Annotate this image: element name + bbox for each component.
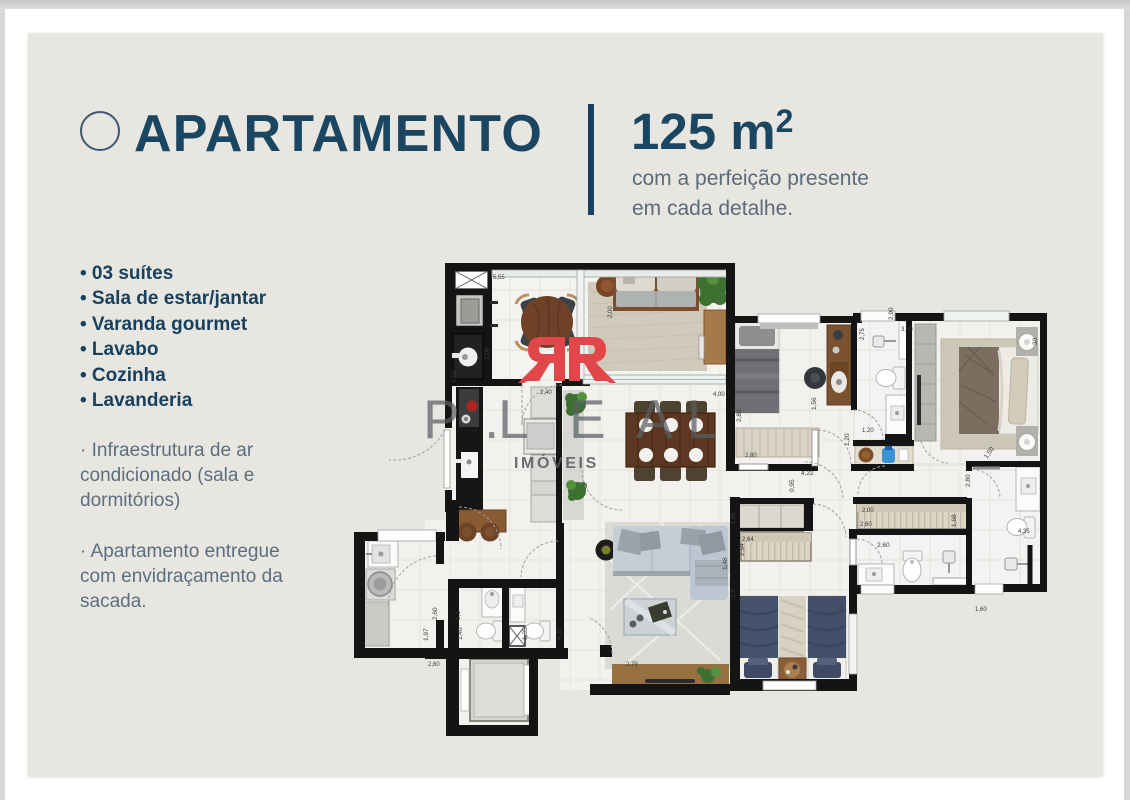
svg-text:A: A — [636, 388, 673, 450]
svg-text:30: 30 — [1032, 337, 1039, 345]
svg-text:2,75: 2,75 — [860, 328, 866, 340]
svg-text:4,58: 4,58 — [451, 370, 458, 383]
svg-text:2,64: 2,64 — [742, 537, 754, 543]
svg-text:2,40: 2,40 — [540, 390, 552, 396]
svg-text:1,20: 1,20 — [844, 433, 851, 446]
svg-text:2,80: 2,80 — [965, 474, 972, 487]
svg-text:1,56: 1,56 — [731, 512, 737, 524]
svg-text:4,22: 4,22 — [801, 470, 814, 477]
svg-text:3,00: 3,00 — [901, 327, 913, 333]
svg-text:2,79: 2,79 — [626, 662, 638, 668]
svg-text:0,95: 0,95 — [789, 479, 796, 492]
svg-text:1,5: 1,5 — [730, 589, 737, 598]
svg-text:1,97: 1,97 — [423, 628, 430, 641]
svg-text:1,1: 1,1 — [455, 611, 462, 620]
svg-text:L: L — [687, 388, 718, 450]
svg-text:4,35: 4,35 — [1018, 529, 1030, 535]
svg-text:5,55: 5,55 — [493, 275, 505, 281]
svg-text:2,80: 2,80 — [736, 409, 743, 422]
svg-text:4,22: 4,22 — [556, 627, 563, 640]
svg-text:1,40: 1,40 — [457, 627, 464, 640]
svg-text:1,60: 1,60 — [975, 607, 987, 613]
svg-text:2,00: 2,00 — [608, 306, 614, 318]
svg-text:E: E — [569, 388, 606, 450]
svg-text:L: L — [498, 388, 529, 450]
svg-text:2,60: 2,60 — [428, 662, 440, 668]
svg-text:1,56: 1,56 — [811, 397, 818, 410]
svg-text:2,60: 2,60 — [432, 607, 439, 620]
svg-text:P: P — [423, 388, 460, 450]
svg-text:2,00: 2,00 — [484, 347, 491, 360]
svg-text:1,20: 1,20 — [862, 428, 874, 434]
svg-text:2,64: 2,64 — [739, 543, 746, 556]
svg-text:5: 5 — [838, 606, 845, 610]
svg-text:IMÓVEIS: IMÓVEIS — [514, 453, 599, 472]
svg-text:2,80: 2,80 — [745, 453, 757, 459]
svg-text:2,00: 2,00 — [862, 508, 874, 514]
svg-text:2,60: 2,60 — [860, 522, 872, 528]
svg-text:1,48: 1,48 — [722, 557, 729, 570]
svg-text:2,90: 2,90 — [888, 307, 895, 320]
svg-text:1,35: 1,35 — [522, 627, 529, 640]
svg-text:.: . — [484, 388, 499, 450]
svg-text:2,60: 2,60 — [877, 542, 890, 549]
svg-text:1,68: 1,68 — [951, 514, 958, 527]
